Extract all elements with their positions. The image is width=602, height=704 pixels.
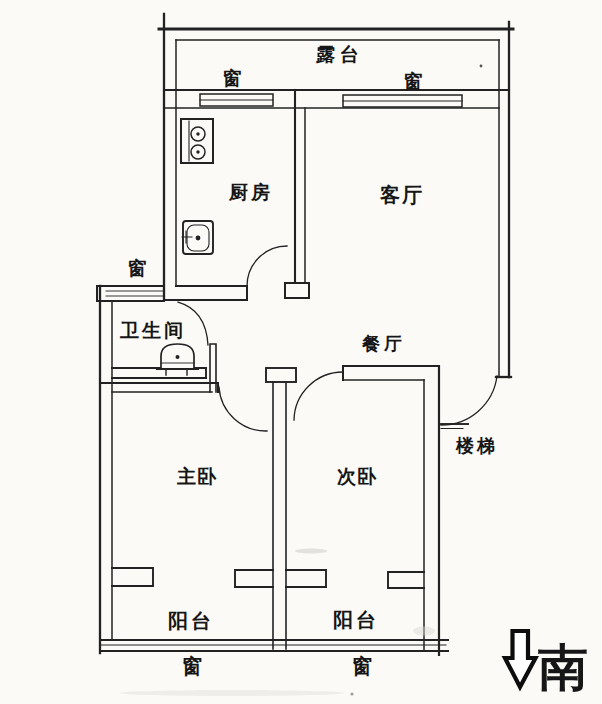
stairs-wall-stub: [441, 424, 468, 429]
window-label-bottom-right: 窗: [352, 656, 372, 676]
window-label-bottom-left: 窗: [182, 656, 202, 676]
room-label-bathroom: 卫生间: [120, 321, 186, 340]
stove-icon: [181, 119, 213, 163]
room-label-balcony-left: 阳台: [168, 611, 214, 631]
room-label-balcony-right: 阳台: [333, 610, 379, 630]
master-bedroom-wall: [100, 383, 218, 392]
kitchen-walls: [164, 286, 247, 300]
entry-door-arc: [441, 376, 497, 425]
compass-south-label: 南: [538, 643, 588, 693]
bottom-window-wall: [100, 640, 448, 651]
kitchen-divider-wall: [285, 90, 309, 298]
south-arrow-icon: [505, 631, 536, 687]
toilet-icon: [157, 344, 198, 375]
master-door-arc: [219, 387, 267, 431]
floor-plan-drawing: [0, 0, 602, 704]
top-window-wall: [164, 90, 509, 108]
sink-icon: [182, 221, 213, 254]
window-label-bathroom: 窗: [128, 259, 147, 278]
window-label-kitchen-top: 窗: [223, 69, 242, 88]
room-label-living-room: 客厅: [380, 185, 424, 205]
second-bedroom-door-arc: [294, 372, 343, 420]
center-partition-wall: [235, 368, 326, 649]
bathroom-window-icon: [106, 291, 164, 296]
room-label-second-bedroom: 次卧: [337, 467, 377, 486]
room-label-kitchen: 厨房: [229, 183, 273, 202]
balcony-partition-walls: [112, 568, 153, 586]
room-label-master-bedroom: 主卧: [177, 467, 217, 486]
kitchen-door-arc: [247, 246, 287, 286]
terrace-walls: [159, 14, 513, 377]
room-label-stairs: 楼梯: [456, 437, 498, 455]
window-label-living-top: 窗: [404, 72, 423, 91]
room-label-terrace: 露台: [316, 45, 364, 64]
room-label-dining-room: 餐厅: [362, 335, 406, 353]
paper-smudges: [120, 65, 482, 696]
floor-plan: 露台 厨房 客厅 卫生间 餐厅 楼梯 主卧 次卧 阳台 阳台 窗 窗 窗 窗 窗…: [0, 0, 602, 704]
